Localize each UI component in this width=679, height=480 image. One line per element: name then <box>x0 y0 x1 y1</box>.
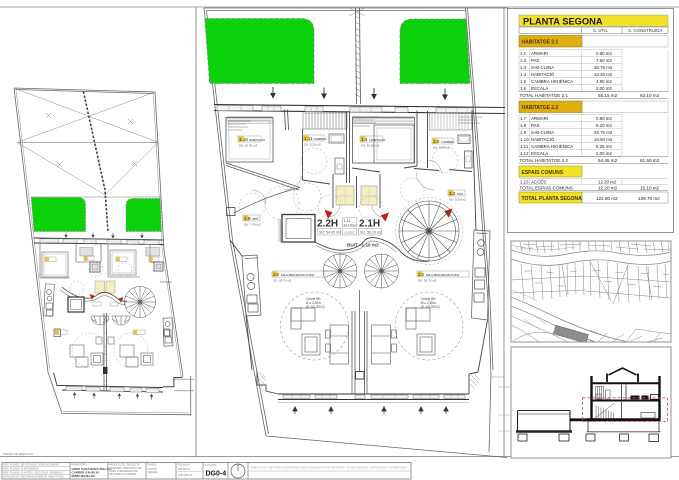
svg-text:ARMARI: ARMARI <box>531 51 548 56</box>
svg-text:139.70 m2: 139.70 m2 <box>638 196 660 201</box>
svg-text:10.50 m2: 10.50 m2 <box>594 137 613 142</box>
svg-text:1.12 ESC: 1.12 ESC <box>344 231 355 235</box>
svg-text:ADEQUACIO I REFORMA INTERIOR H: ADEQUACIO I REFORMA INTERIOR HABITATGES <box>4 475 65 479</box>
svg-text:ARMARI: ARMARI <box>531 116 548 121</box>
svg-text:5.25 m2: 5.25 m2 <box>596 144 612 149</box>
svg-text:CAMBRA HIGIÈNICA: CAMBRA HIGIÈNICA <box>531 79 573 84</box>
svg-text:SU: 5.25 m2: SU: 5.25 m2 <box>304 143 321 147</box>
svg-text:ESCALA: ESCALA <box>531 151 548 156</box>
svg-text:2.00 m2: 2.00 m2 <box>596 86 612 91</box>
svg-text:1/50 DIN-A1: 1/50 DIN-A1 <box>178 468 192 471</box>
svg-text:REF. PLANOL DE SITUACIO I EMPL: REF. PLANOL DE SITUACIO I EMPLACAMENT <box>4 463 60 467</box>
svg-text:1.11: 1.11 <box>344 219 351 223</box>
svg-text:0.80 m2: 0.80 m2 <box>596 51 612 56</box>
svg-text:1.9: 1.9 <box>520 130 527 135</box>
svg-text:122.80 m2: 122.80 m2 <box>596 196 618 201</box>
svg-text:1/100 DIN-A3: 1/100 DIN-A3 <box>178 474 193 477</box>
svg-text:ESCALA: ESCALA <box>531 86 548 91</box>
svg-text:SU: 10.20 m2: SU: 10.20 m2 <box>361 144 380 148</box>
svg-text:PLANTA SEGONA: PLANTA SEGONA <box>523 16 603 26</box>
svg-text:SU: 54.45 m2: SU: 54.45 m2 <box>319 231 341 235</box>
svg-text:1.8: 1.8 <box>520 123 527 128</box>
svg-text:54.45 m2: 54.45 m2 <box>598 158 618 163</box>
svg-text:PROJECTE EXECUTIU: PROJECTE EXECUTIU <box>3 452 33 456</box>
svg-text:SU: 4.80 m2: SU: 4.80 m2 <box>433 146 450 150</box>
svg-text:1.5CAMBRA: 1.5CAMBRA <box>433 139 454 144</box>
svg-text:1.4HABITACIO: 1.4HABITACIO <box>361 137 386 142</box>
svg-text:10.20 m2: 10.20 m2 <box>594 72 613 77</box>
svg-text:15.10 m2: 15.10 m2 <box>640 186 660 191</box>
svg-text:TOTAL ESPAIS COMUNS: TOTAL ESPAIS COMUNS <box>520 186 573 191</box>
svg-text:(D.141/2012): (D.141/2012) <box>421 305 440 309</box>
svg-text:S. UTIL: S. UTIL <box>593 28 608 33</box>
svg-text:SU: 7.60 m2: SU: 7.60 m2 <box>244 223 261 227</box>
svg-text:1.11CAMBRA: 1.11CAMBRA <box>304 136 326 141</box>
svg-text:1.11: 1.11 <box>520 144 529 149</box>
svg-text:SU: 10.50 m2: SU: 10.50 m2 <box>239 144 258 148</box>
svg-text:2.2H: 2.2H <box>317 219 338 230</box>
svg-text:SU: 25.70 m2: SU: 25.70 m2 <box>273 279 292 283</box>
svg-text:1.2: 1.2 <box>520 58 527 63</box>
svg-text:ESCALA A1: ESCALA A1 <box>178 464 191 467</box>
svg-text:ACCÉS: ACCÉS <box>531 179 546 184</box>
svg-text:CAMBRA HIGIÈNICA: CAMBRA HIGIÈNICA <box>531 144 573 149</box>
svg-text:2.1H: 2.1H <box>359 219 380 230</box>
svg-text:1.3: 1.3 <box>520 65 527 70</box>
svg-text:2.00 m2: 2.00 m2 <box>596 151 612 156</box>
svg-text:SU: 56.15 m2: SU: 56.15 m2 <box>360 231 382 235</box>
svg-text:TOTAL PLANTA SEGONA: TOTAL PLANTA SEGONA <box>522 196 583 202</box>
svg-text:1.5: 1.5 <box>520 79 527 84</box>
svg-text:30.75 m2: 30.75 m2 <box>594 65 613 70</box>
svg-text:1.13: 1.13 <box>520 179 529 184</box>
svg-text:N. PLANOL: N. PLANOL <box>205 464 218 467</box>
svg-text:DG0-4: DG0-4 <box>206 471 227 478</box>
svg-text:08560 MANLLEU: 08560 MANLLEU <box>72 474 96 478</box>
svg-text:S-M-CUINA: S-M-CUINA <box>531 65 554 70</box>
svg-text:1.1: 1.1 <box>520 51 527 56</box>
svg-text:REF. PLANOL PLANTA BAIXA: REF. PLANOL PLANTA BAIXA <box>4 467 40 471</box>
svg-text:4.80 m2: 4.80 m2 <box>596 79 612 84</box>
svg-text:ADEQUACIO I REFORMA INTERIOR D: ADEQUACIO I REFORMA INTERIOR DE DUES VIV… <box>251 466 407 470</box>
svg-text:MITGERES AL CARRER: MITGERES AL CARRER <box>110 473 137 476</box>
svg-text:12.20 m2: 12.20 m2 <box>598 186 618 191</box>
svg-text:1.10HABITACIO: 1.10HABITACIO <box>239 137 266 142</box>
svg-text:7.60 m2: 7.60 m2 <box>596 58 612 63</box>
svg-text:TOTAL HABITATGE 2.1: TOTAL HABITATGE 2.1 <box>520 93 569 98</box>
svg-text:PLANOL: PLANOL <box>148 464 158 467</box>
svg-text:9.20 m2: 9.20 m2 <box>596 123 612 128</box>
svg-text:SU:5.25m2: SU:5.25m2 <box>344 223 358 227</box>
svg-text:HABITATGE 2.2: HABITATGE 2.2 <box>522 105 559 111</box>
svg-text:63.10 m2: 63.10 m2 <box>640 93 660 98</box>
svg-text:HABITACIÓ: HABITACIÓ <box>531 72 555 77</box>
svg-text:HABITACIÓ: HABITACIÓ <box>531 137 555 142</box>
svg-text:REF. PLANOL PLANTES I SECCIONS: REF. PLANOL PLANTES I SECCIONS GENERALS <box>4 471 64 475</box>
svg-text:1.6: 1.6 <box>520 86 527 91</box>
svg-text:61.50 m2: 61.50 m2 <box>640 158 660 163</box>
svg-text:SU: 30.75 m2: SU: 30.75 m2 <box>418 279 437 283</box>
svg-text:25.70 m2: 25.70 m2 <box>594 130 613 135</box>
svg-text:56.15 m2: 56.15 m2 <box>598 93 618 98</box>
svg-text:PAS: PAS <box>531 58 540 63</box>
svg-text:HABITATGE 2.1: HABITATGE 2.1 <box>522 40 559 46</box>
svg-text:TOTAL HABITATGE 2.2: TOTAL HABITATGE 2.2 <box>520 158 569 163</box>
svg-text:1.10: 1.10 <box>520 137 529 142</box>
svg-text:SU: 9.20 m2: SU: 9.20 m2 <box>449 198 466 202</box>
svg-text:(D.141/2012): (D.141/2012) <box>306 305 325 309</box>
svg-text:1.7: 1.7 <box>520 116 527 121</box>
svg-text:S-M-CUINA: S-M-CUINA <box>531 130 554 135</box>
svg-text:SEGONA: SEGONA <box>148 471 159 474</box>
svg-text:PAS: PAS <box>531 123 540 128</box>
svg-text:BUIT <1.10 m2: BUIT <1.10 m2 <box>347 243 379 248</box>
svg-text:1.4: 1.4 <box>520 72 527 77</box>
svg-text:1.12: 1.12 <box>520 151 529 156</box>
svg-text:12.20 m2: 12.20 m2 <box>598 179 617 184</box>
svg-text:S. CONSTRUIDA: S. CONSTRUIDA <box>628 28 662 33</box>
svg-text:0.80 m2: 0.80 m2 <box>596 116 612 121</box>
svg-text:ESPAIS COMUNS: ESPAIS COMUNS <box>522 170 564 176</box>
